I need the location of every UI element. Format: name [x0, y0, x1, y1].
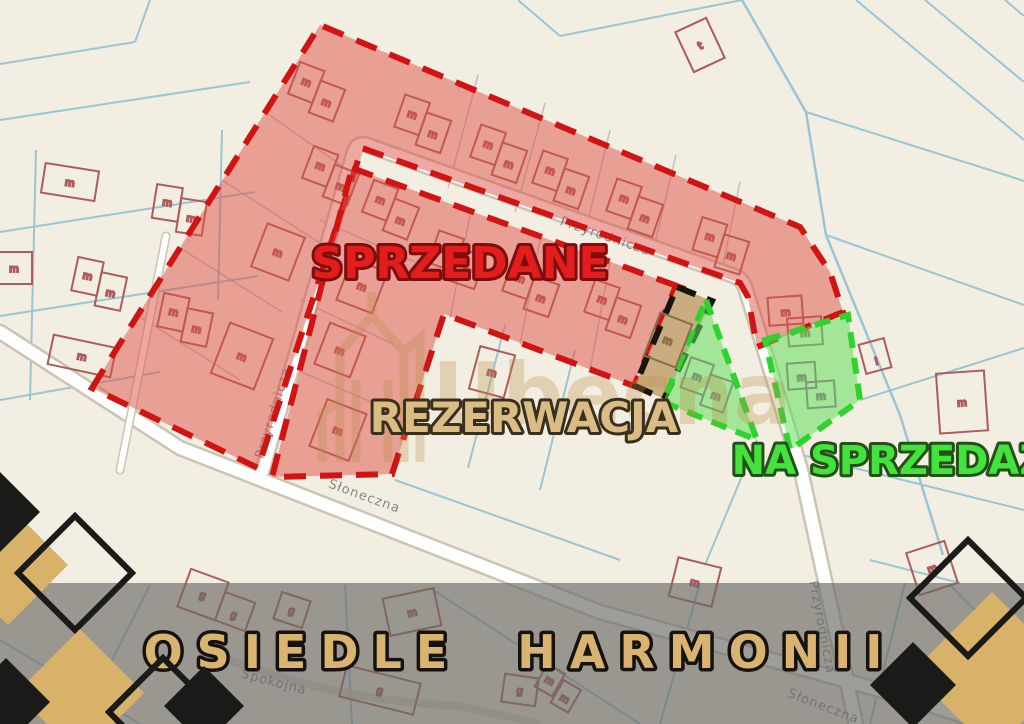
building-label: m — [162, 197, 173, 209]
building-label: m — [816, 391, 826, 403]
building-label: m — [957, 398, 967, 410]
zone-sold-label: SPRZEDANE — [311, 238, 608, 289]
estate-title: OSIEDLE HARMONII — [144, 625, 897, 679]
building-label: m — [64, 177, 75, 189]
zone-reserved-label: REZERWACJA — [370, 393, 679, 442]
building-label: m — [796, 372, 806, 384]
map-poster: m mm m mm mm m mm mm m m mm mm mm mm mm … — [0, 0, 1024, 724]
zone-for-sale-label: NA SPRZEDAŻ — [732, 436, 1024, 484]
building-label: m — [9, 264, 19, 275]
map-canvas: m mm m mm mm m mm mm m m mm mm mm mm mm … — [0, 0, 1024, 724]
